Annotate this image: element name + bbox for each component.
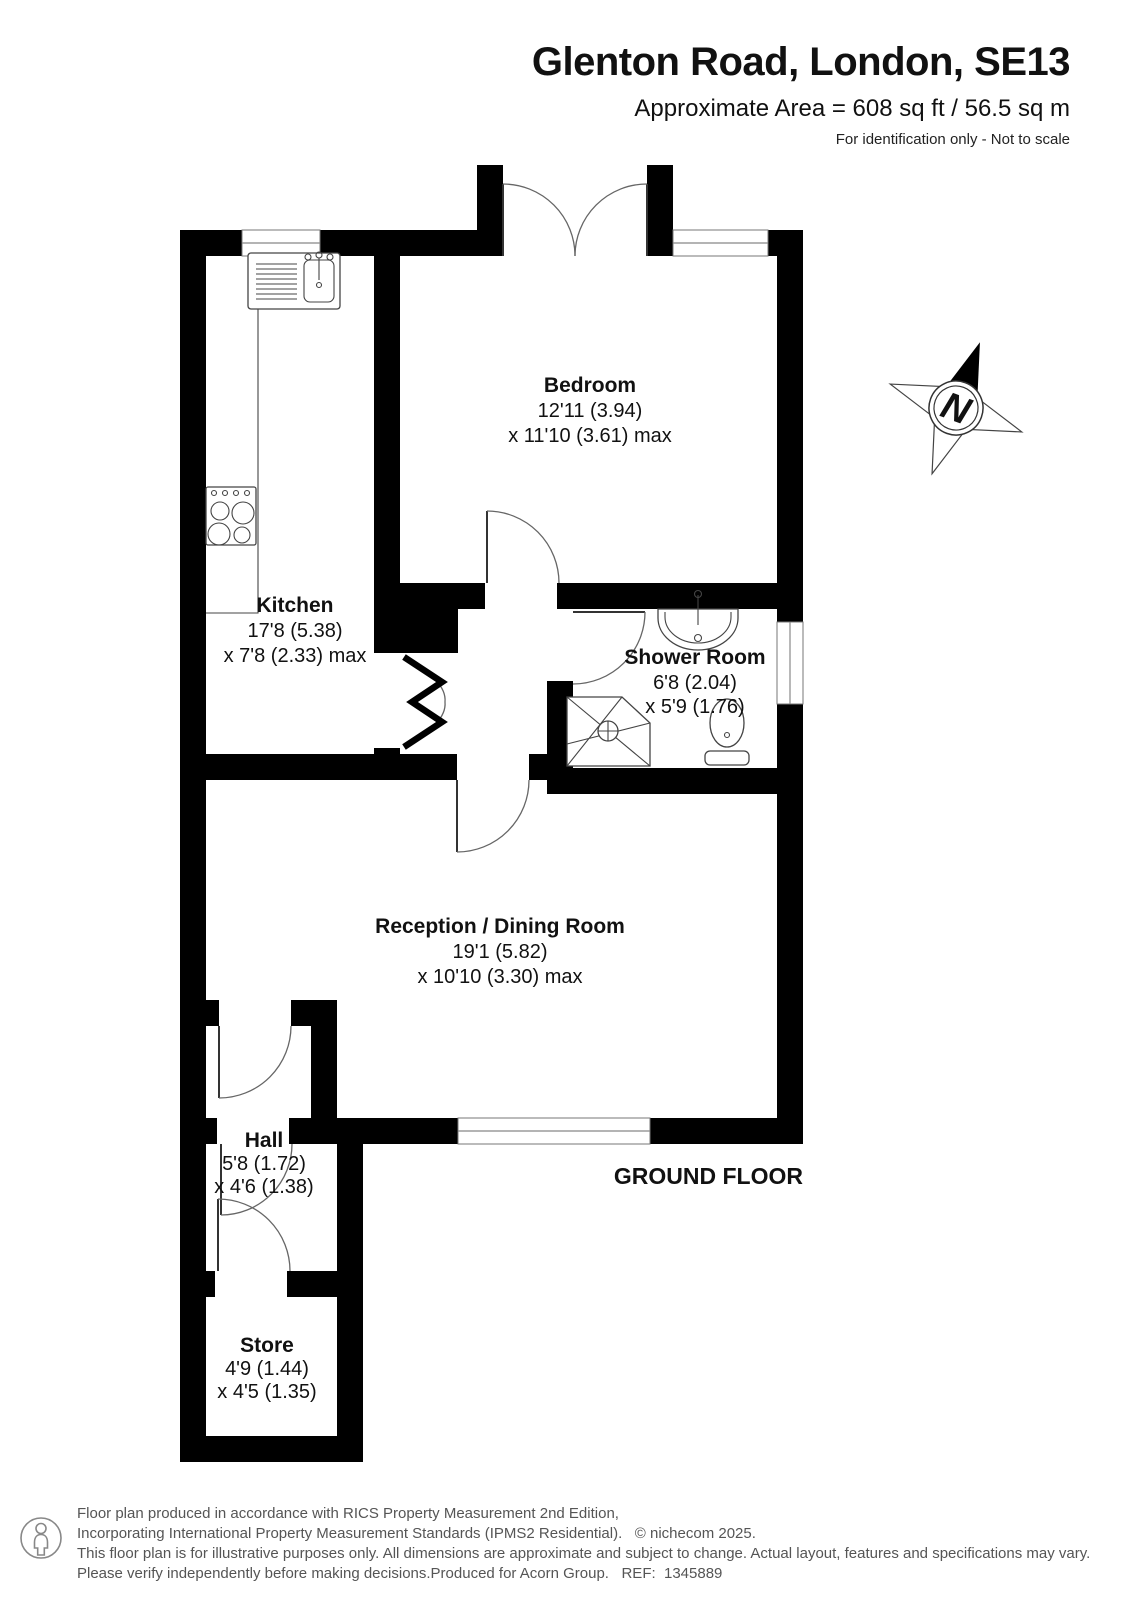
kitchen-bifold-door <box>404 657 445 747</box>
room-dim: x 4'6 (1.38) <box>214 1176 313 1198</box>
room-dim: x 5'9 (1.76) <box>645 696 744 718</box>
room-name: Bedroom <box>544 374 636 397</box>
room-label-kitchen: Kitchen 17'8 (5.38) x 7'8 (2.33) max <box>224 594 367 667</box>
room-dim: x 10'10 (3.30) max <box>417 966 582 988</box>
hall-entrance-door <box>219 1026 291 1098</box>
kitchen-counter <box>206 309 258 613</box>
room-name: Store <box>240 1334 294 1357</box>
shower-tray <box>567 697 650 766</box>
footer: Floor plan produced in accordance with R… <box>19 1516 1090 1584</box>
room-dim: 19'1 (5.82) <box>453 941 548 963</box>
bedroom-window <box>673 230 768 256</box>
room-name: Hall <box>245 1129 284 1152</box>
shower-room-window <box>777 622 803 704</box>
footer-line-3: This floor plan is for illustrative purp… <box>77 1544 1090 1564</box>
room-dim: 4'9 (1.44) <box>225 1358 309 1380</box>
footer-line-1: Floor plan produced in accordance with R… <box>77 1504 1090 1524</box>
kitchen-sink <box>248 252 340 309</box>
room-label-shower-room: Shower Room 6'8 (2.04) x 5'9 (1.76) <box>624 646 765 718</box>
room-dim: x 4'5 (1.35) <box>217 1381 316 1403</box>
reception-door <box>457 780 529 852</box>
walls <box>180 165 803 1462</box>
bedroom-door <box>487 511 559 583</box>
store-door <box>218 1199 290 1271</box>
room-label-store: Store 4'9 (1.44) x 4'5 (1.35) <box>217 1334 316 1403</box>
floor-plan: N Bedroom 12'11 (3.94) x 11'10 (3.61) ma… <box>0 0 1131 1600</box>
room-dim: 12'11 (3.94) <box>538 400 643 422</box>
room-dim: x 7'8 (2.33) max <box>224 645 367 667</box>
room-name: Reception / Dining Room <box>375 915 625 938</box>
room-name: Kitchen <box>256 594 333 617</box>
floor-label: GROUND FLOOR <box>614 1163 803 1189</box>
room-name: Shower Room <box>624 646 765 669</box>
footer-text: Floor plan produced in accordance with R… <box>77 1504 1090 1584</box>
compass-north-icon: N <box>866 318 1045 497</box>
bedroom-french-doors <box>503 184 647 256</box>
footer-line-2: Incorporating International Property Mea… <box>77 1524 1090 1544</box>
footer-line-4: Please verify independently before makin… <box>77 1564 1090 1584</box>
person-icon <box>19 1516 63 1560</box>
reception-window <box>458 1118 650 1144</box>
room-label-reception: Reception / Dining Room 19'1 (5.82) x 10… <box>375 915 625 988</box>
kitchen-window <box>242 230 320 256</box>
room-dim: x 11'10 (3.61) max <box>508 425 672 447</box>
room-dim: 5'8 (1.72) <box>222 1153 306 1175</box>
kitchen-hob <box>206 487 256 545</box>
room-dim: 6'8 (2.04) <box>653 672 737 694</box>
floorplan-page: Glenton Road, London, SE13 Approximate A… <box>0 0 1131 1600</box>
room-label-bedroom: Bedroom 12'11 (3.94) x 11'10 (3.61) max <box>508 374 672 447</box>
room-dim: 17'8 (5.38) <box>248 620 343 642</box>
